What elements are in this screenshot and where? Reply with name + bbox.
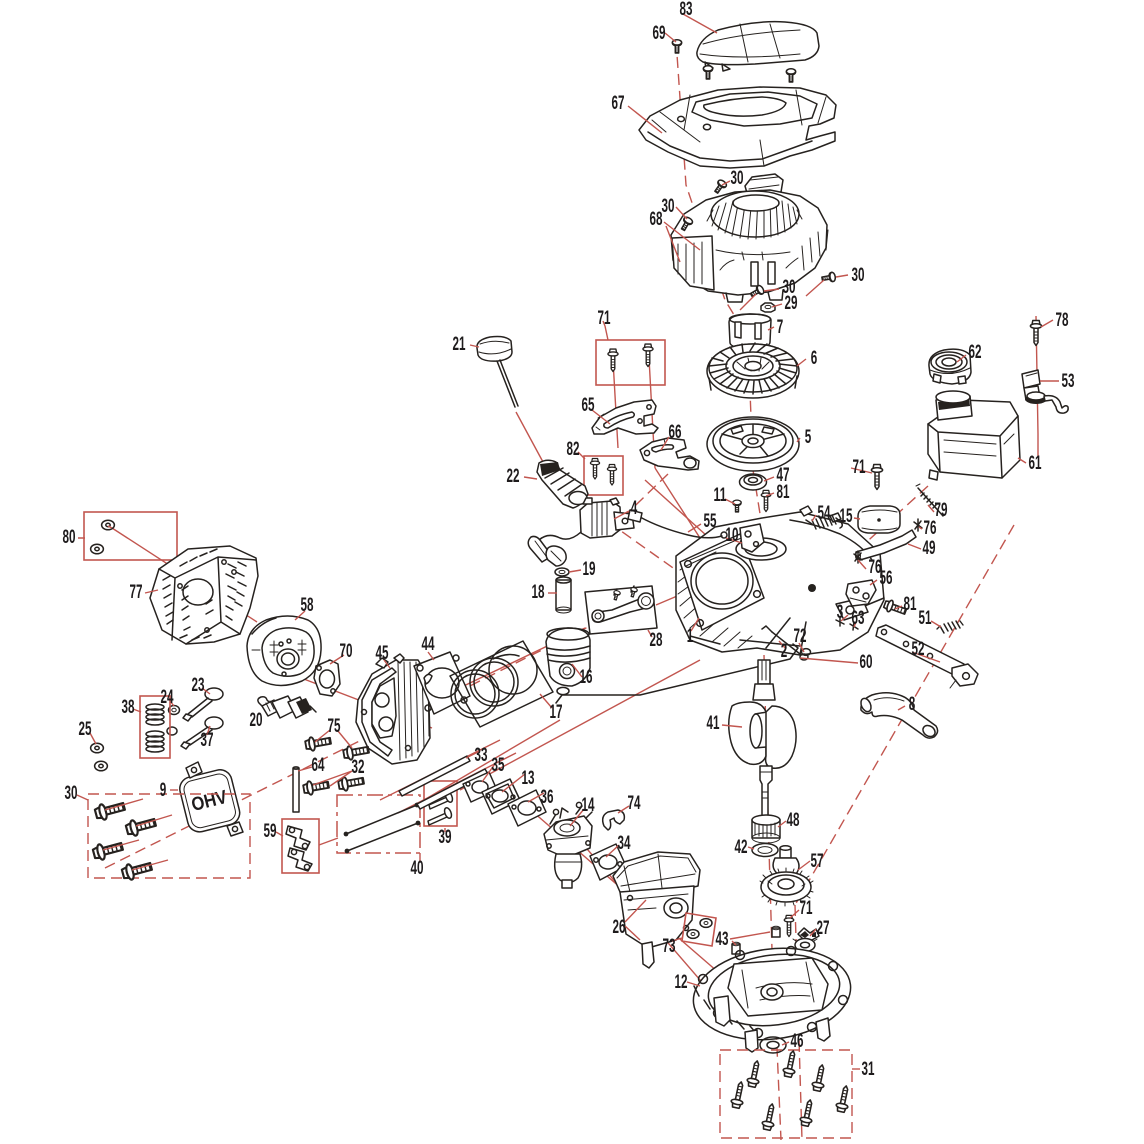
svg-text:9: 9 [160,780,167,801]
svg-text:30: 30 [852,265,865,286]
svg-text:17: 17 [550,702,563,723]
svg-text:65: 65 [582,395,595,416]
svg-text:2: 2 [781,641,788,662]
svg-text:23: 23 [192,675,205,696]
svg-text:83: 83 [680,0,693,20]
svg-text:7: 7 [777,317,784,338]
svg-text:71: 71 [598,308,611,329]
svg-text:1: 1 [687,626,694,647]
svg-text:26: 26 [613,917,626,938]
svg-text:21: 21 [453,334,466,355]
svg-text:76: 76 [924,518,937,539]
svg-text:55: 55 [704,511,717,532]
svg-text:81: 81 [777,482,790,503]
svg-text:75: 75 [328,716,341,737]
svg-text:32: 32 [352,757,365,778]
svg-text:34: 34 [618,833,631,854]
svg-text:27: 27 [817,918,830,939]
svg-text:59: 59 [264,821,277,842]
svg-text:43: 43 [716,929,729,950]
svg-text:16: 16 [580,667,593,688]
svg-text:22: 22 [507,466,520,487]
svg-text:51: 51 [919,608,932,629]
svg-text:42: 42 [735,837,748,858]
svg-text:64: 64 [312,755,325,776]
svg-text:19: 19 [583,559,596,580]
svg-text:67: 67 [612,93,625,114]
svg-text:5: 5 [805,427,812,448]
svg-text:49: 49 [923,538,936,559]
svg-text:78: 78 [1056,310,1069,331]
svg-text:8: 8 [909,694,916,715]
svg-text:72: 72 [794,626,807,647]
svg-text:18: 18 [532,582,545,603]
svg-text:53: 53 [1062,371,1075,392]
svg-text:61: 61 [1029,453,1042,474]
svg-text:35: 35 [492,755,505,776]
svg-text:48: 48 [787,810,800,831]
svg-text:82: 82 [567,439,580,460]
svg-text:12: 12 [675,972,688,993]
svg-text:29: 29 [785,293,798,314]
svg-text:14: 14 [582,795,595,816]
svg-text:10: 10 [726,525,739,546]
svg-text:74: 74 [628,793,641,814]
svg-text:41: 41 [707,713,720,734]
svg-text:66: 66 [669,422,682,443]
svg-text:46: 46 [791,1031,804,1052]
svg-text:52: 52 [912,639,925,660]
svg-text:20: 20 [250,710,263,731]
svg-text:71: 71 [853,457,866,478]
svg-text:58: 58 [301,595,314,616]
svg-text:4: 4 [631,498,638,519]
svg-text:38: 38 [122,697,135,718]
svg-text:69: 69 [653,23,666,44]
svg-text:31: 31 [862,1059,875,1080]
svg-text:63: 63 [852,608,865,629]
svg-text:62: 62 [969,342,982,363]
svg-text:57: 57 [811,851,824,872]
svg-text:70: 70 [340,641,353,662]
svg-text:33: 33 [475,745,488,766]
svg-text:15: 15 [840,506,853,527]
svg-text:11: 11 [714,485,727,506]
svg-text:6: 6 [811,348,818,369]
svg-text:60: 60 [860,652,873,673]
svg-text:80: 80 [63,527,76,548]
svg-text:28: 28 [650,630,663,651]
svg-text:3: 3 [837,602,844,623]
svg-text:81: 81 [904,594,917,615]
svg-text:56: 56 [880,568,893,589]
svg-text:73: 73 [663,936,676,957]
svg-text:54: 54 [818,503,831,524]
svg-text:77: 77 [130,582,143,603]
svg-text:39: 39 [439,827,452,848]
svg-text:40: 40 [411,858,424,879]
svg-text:30: 30 [731,168,744,189]
svg-text:30: 30 [65,783,78,804]
svg-text:45: 45 [376,643,389,664]
svg-text:30: 30 [662,196,675,217]
svg-text:24: 24 [161,687,174,708]
svg-text:36: 36 [541,787,554,808]
svg-text:71: 71 [800,898,813,919]
svg-text:25: 25 [79,719,92,740]
svg-text:13: 13 [522,768,535,789]
svg-text:37: 37 [201,730,214,751]
svg-text:44: 44 [422,634,435,655]
